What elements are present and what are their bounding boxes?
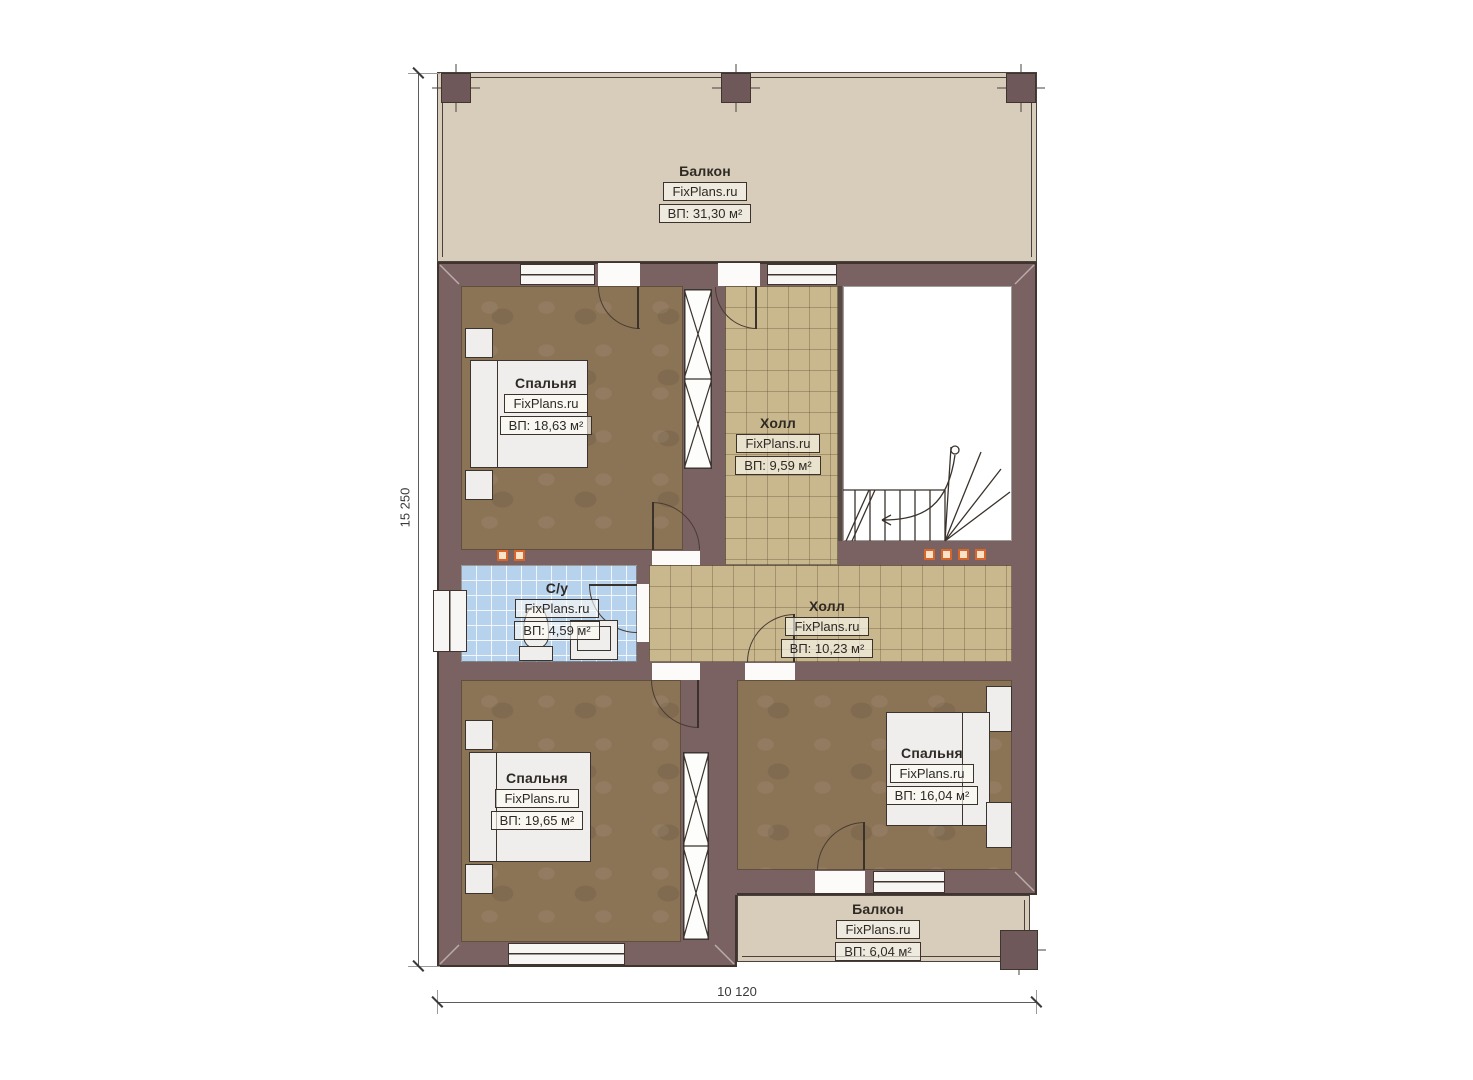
wall-marker (958, 549, 969, 560)
area-box: ВП: 19,65 м² (491, 811, 584, 830)
nightstand (465, 720, 493, 750)
door-opening-bedroom2-balcony (815, 871, 865, 893)
nightstand (986, 802, 1012, 848)
window-bedroom-top-left (520, 264, 595, 285)
window-bedroom-bottom-left (508, 943, 625, 965)
window-bathroom (433, 590, 467, 652)
wall-marker (514, 550, 525, 561)
watermark-box: FixPlans.ru (495, 789, 578, 808)
area-box: ВП: 16,04 м² (886, 786, 979, 805)
door-leaf-bedroom1-entry (652, 502, 654, 550)
room-name: Спальня (515, 375, 577, 391)
door-leaf-hall-balcony (755, 287, 757, 329)
wall-edge-balcony-bottom (737, 893, 1037, 895)
dimension-line-horizontal (437, 1002, 1036, 1003)
room-name: Балкон (852, 901, 904, 917)
balcony-column-bottom-right (1000, 930, 1038, 970)
room-label-bathroom: С/у FixPlans.ru ВП: 4,59 м² (482, 580, 632, 640)
dimension-label-width: 10 120 (687, 984, 787, 999)
dimension-label-height: 15 250 (398, 478, 413, 538)
door-opening-hall-balcony (718, 263, 760, 286)
door-opening-bedroom1-entry (652, 551, 700, 565)
balcony-column-left (441, 73, 471, 103)
wall-marker (924, 549, 935, 560)
room-name: С/у (546, 580, 568, 596)
wall-marker (941, 549, 952, 560)
room-label-balcony-bottom: Балкон FixPlans.ru ВП: 6,04 м² (803, 901, 953, 961)
room-label-bedroom-top-left: Спальня FixPlans.ru ВП: 18,63 м² (471, 375, 621, 435)
nightstand (465, 470, 493, 500)
watermark-box: FixPlans.ru (504, 394, 587, 413)
area-box: ВП: 18,63 м² (500, 416, 593, 435)
watermark-box: FixPlans.ru (836, 920, 919, 939)
nightstand (465, 328, 493, 358)
area-box: ВП: 10,23 м² (781, 639, 874, 658)
room-name: Спальня (506, 770, 568, 786)
balcony-column-right (1006, 73, 1036, 103)
dimension-line-vertical (418, 73, 419, 966)
room-label-bedroom-bottom-left: Спальня FixPlans.ru ВП: 19,65 м² (462, 770, 612, 830)
room-name: Холл (809, 598, 845, 614)
area-box: ВП: 6,04 м² (835, 942, 920, 961)
area-box: ВП: 4,59 м² (514, 621, 599, 640)
watermark-box: FixPlans.ru (785, 617, 868, 636)
stair-guard-wall (838, 286, 842, 541)
door-opening-bedroom2-entry (745, 663, 795, 680)
door-leaf-bedroom3-entry (697, 680, 699, 728)
watermark-box: FixPlans.ru (736, 434, 819, 453)
nightstand (465, 864, 493, 894)
window-bedroom-right (873, 871, 945, 893)
window-hall-upper (767, 264, 837, 285)
door-opening-bedroom3-entry (652, 663, 700, 680)
room-label-hall-upper: Холл FixPlans.ru ВП: 9,59 м² (703, 415, 853, 475)
room-label-bedroom-right: Спальня FixPlans.ru ВП: 16,04 м² (857, 745, 1007, 805)
room-label-hall-lower: Холл FixPlans.ru ВП: 10,23 м² (752, 598, 902, 658)
watermark-box: FixPlans.ru (663, 182, 746, 201)
wall-marker (975, 549, 986, 560)
door-opening-bathroom (637, 584, 649, 642)
room-name: Спальня (901, 745, 963, 761)
balcony-column-middle (721, 73, 751, 103)
wall-marker (497, 550, 508, 561)
watermark-box: FixPlans.ru (515, 599, 598, 618)
toilet-tank (519, 646, 553, 661)
area-box: ВП: 31,30 м² (659, 204, 752, 223)
door-leaf-bedroom1-balcony (637, 287, 639, 329)
room-name: Балкон (679, 163, 731, 179)
extension-line (408, 73, 440, 74)
area-box: ВП: 9,59 м² (735, 456, 820, 475)
door-leaf-bedroom2-balcony (863, 822, 865, 870)
room-name: Холл (760, 415, 796, 431)
stairwell-void (843, 286, 1012, 541)
floor-plan-canvas: Балкон FixPlans.ru ВП: 31,30 м² Спальня … (0, 0, 1473, 1080)
watermark-box: FixPlans.ru (890, 764, 973, 783)
extension-line (408, 966, 440, 967)
room-label-balcony-top: Балкон FixPlans.ru ВП: 31,30 м² (630, 163, 780, 223)
door-opening-bedroom1-balcony (598, 263, 640, 286)
